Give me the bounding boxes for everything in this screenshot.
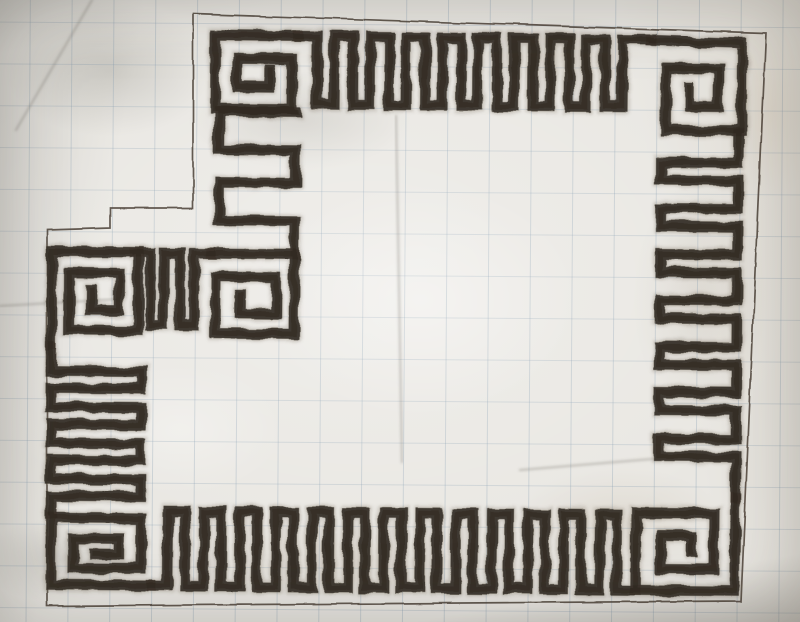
photo-vignette xyxy=(0,0,800,622)
sketch-photo: Hand-drawn Greek key meander border patt… xyxy=(0,0,800,622)
